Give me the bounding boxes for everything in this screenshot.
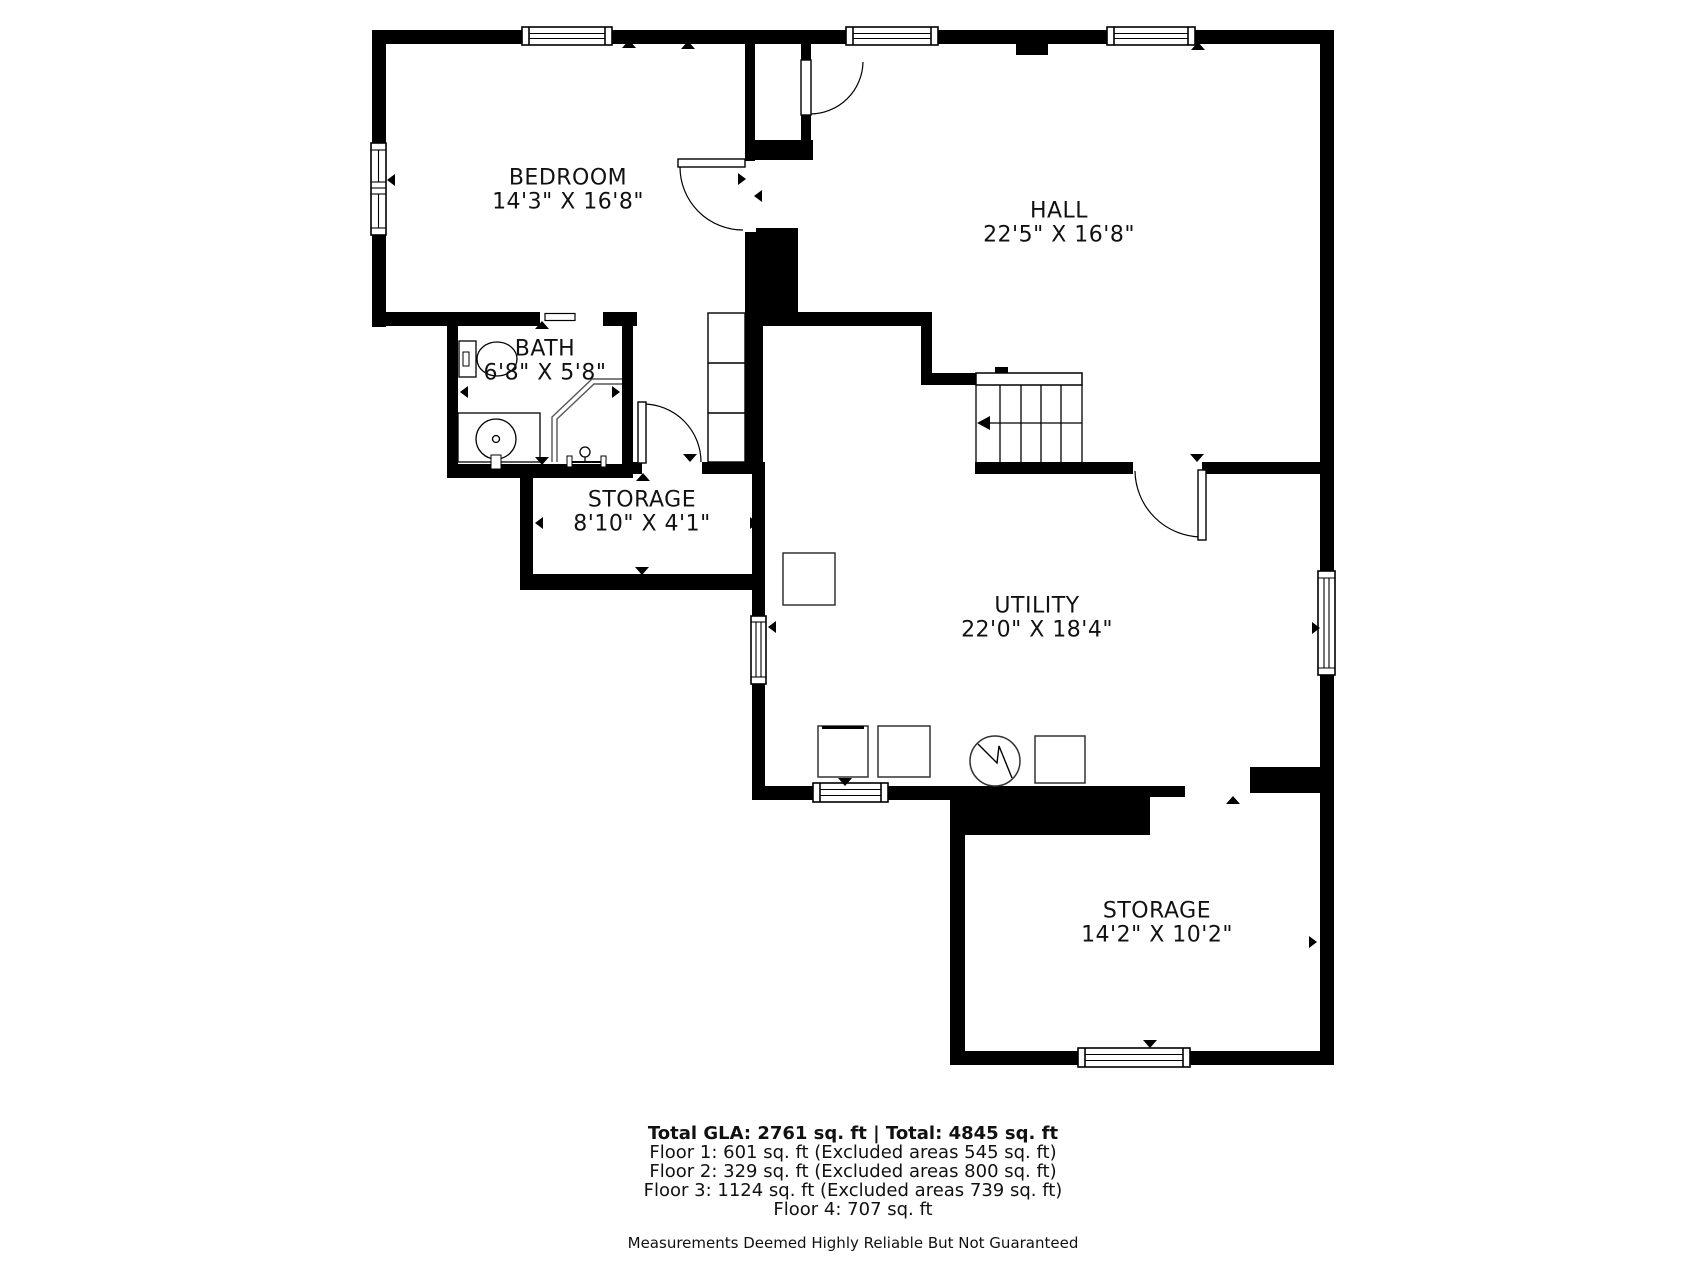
room-name: HALL [983,199,1135,223]
wall-bath-right [622,312,633,478]
window-bedroom-left [371,143,386,235]
wall-storage-small-bottom [520,574,765,590]
wall-hall-west-blob [745,228,798,312]
arrow-icon [612,386,620,398]
water-heater-icon [970,736,1020,786]
door-hall-utility [1135,470,1206,540]
window-utility-bottom [813,783,888,802]
wall-storage-top-thin [1150,786,1185,797]
sink-vanity-icon [458,413,540,469]
footer-floor-line: Floor 4: 707 sq. ft [0,1200,1706,1219]
footer-total-line: Total GLA: 2761 sq. ft | Total: 4845 sq.… [0,1124,1706,1143]
wall-hall-bottom [745,312,932,326]
footer-floor-line: Floor 2: 329 sq. ft (Excluded areas 800 … [0,1162,1706,1181]
room-dims: 14'2" X 10'2" [1081,923,1233,947]
opening-bedroom-door [744,161,756,232]
window-utility-left [751,616,766,684]
door-bath-pocket [545,314,575,321]
window-bedroom-top [522,27,612,45]
opening-nook-door [642,461,702,474]
room-dims: 22'5" X 16'8" [983,223,1135,247]
arrow-icon [768,621,776,633]
wall-right [1320,30,1334,1065]
room-label-storage-lower: STORAGE 14'2" X 10'2" [1081,899,1233,947]
wall-nook-stub [633,462,642,474]
wall-mass-utility-storage [950,786,1150,835]
arrow-icon [1309,936,1317,948]
room-dims: 6'8" X 5'8" [484,361,607,385]
room-dims: 22'0" X 18'4" [961,618,1113,642]
room-label-hall: HALL 22'5" X 16'8" [983,199,1135,247]
arrow-icon [460,386,468,398]
utility-fixtures [783,553,1085,786]
wall-top-bump [1016,44,1048,55]
appliance-box-icon [783,553,835,605]
wall-closet-right-lower [801,115,811,145]
room-name: BEDROOM [492,166,644,190]
room-label-bath: BATH 6'8" X 5'8" [484,337,607,385]
arrow-icon [1190,454,1204,462]
room-label-bedroom: BEDROOM 14'3" X 16'8" [492,166,644,214]
stairs [976,373,1082,462]
footer-disclaimer: Measurements Deemed Highly Reliable But … [0,1234,1706,1253]
room-dims: 8'10" X 4'1" [573,512,710,536]
arrow-icon [387,174,395,186]
room-name: STORAGE [1081,899,1233,923]
room-name: UTILITY [961,594,1113,618]
room-label-utility: UTILITY 22'0" X 18'4" [961,594,1113,642]
wall-bath-left [447,312,458,478]
window-storage-bottom [1078,1048,1190,1067]
window-right-wall [1318,571,1335,675]
door-closet [801,60,863,115]
room-name: BATH [484,337,607,361]
dryer-icon [878,726,930,777]
door-nook-storage [638,402,701,463]
wall-stair-top [921,373,982,385]
opening-storage-doorway [1185,785,1250,798]
shelves [708,313,745,462]
floor-plan-drawing [0,0,1706,1280]
footer: Total GLA: 2761 sq. ft | Total: 4845 sq.… [0,1124,1706,1253]
arrow-icon [535,517,543,529]
wall-utility-top-left-of-door [975,462,1133,474]
wall-storage-small-left [520,464,533,590]
opening-hall-utility-door [1133,461,1202,474]
arrow-icon [683,454,697,462]
arrow-icon [635,567,649,575]
window-hall-top-1 [846,27,938,45]
arrow-icon [636,473,650,481]
floor-plan-page: BEDROOM 14'3" X 16'8" HALL 22'5" X 16'8"… [0,0,1706,1280]
washer-icon [818,726,868,777]
window-hall-top-2 [1107,27,1195,45]
room-name: STORAGE [573,488,710,512]
wall-utility-top-right-of-door [1202,462,1322,474]
wall-storage-top-right-block [1250,767,1334,793]
room-dims: 14'3" X 16'8" [492,190,644,214]
room-label-storage-small: STORAGE 8'10" X 4'1" [573,488,710,536]
footer-floor-line: Floor 1: 601 sq. ft (Excluded areas 545 … [0,1143,1706,1162]
footer-floor-line: Floor 3: 1124 sq. ft (Excluded areas 739… [0,1181,1706,1200]
utility-box-icon [1035,736,1085,783]
wall-closet-right-upper [801,30,811,62]
arrow-icon [1143,1040,1157,1048]
stairs-direction-arrow [977,416,990,430]
door-bedroom [678,159,745,230]
wall-shelf-right [745,312,763,462]
